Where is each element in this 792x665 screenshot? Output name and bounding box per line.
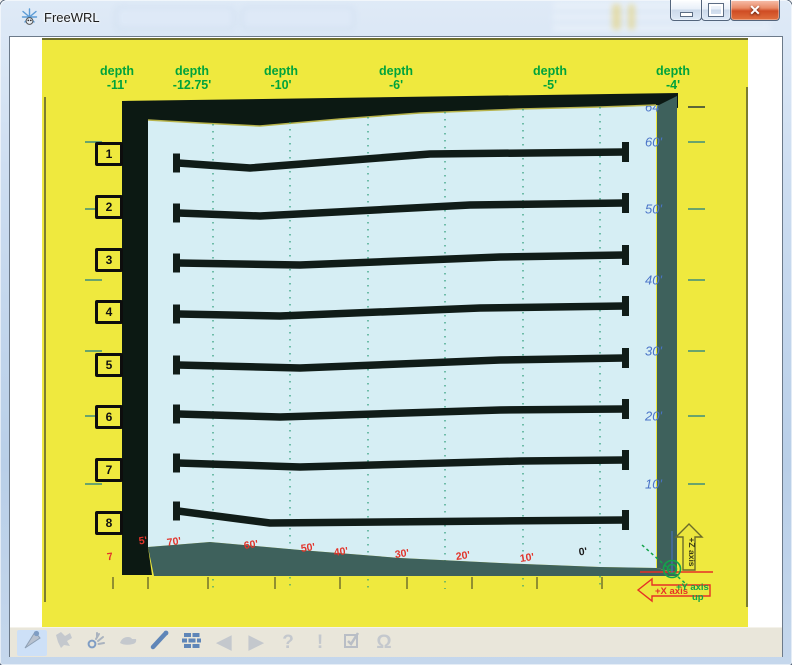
back-button[interactable]: ◀ (209, 630, 239, 656)
forward-button[interactable]: ▶ (241, 630, 271, 656)
bar-end-cap (173, 502, 180, 521)
bar-end-cap (622, 193, 629, 213)
mouse-button[interactable] (113, 630, 143, 656)
client-area: +Z axis +X axis +Y axis up depth-11'dept… (9, 36, 783, 657)
window-title: FreeWRL (44, 10, 100, 25)
examine-icon (85, 629, 107, 656)
bar-end-cap (622, 142, 629, 162)
checkbox-icon (341, 629, 363, 656)
messages-icon: ! (317, 633, 323, 653)
bar-end-cap (173, 454, 180, 473)
freewrl-window: FreeWRL ✕ (0, 0, 792, 665)
bar-end-cap (173, 204, 180, 223)
pen-icon (149, 629, 171, 656)
navigation-toolbar: ◀▶?!Ω (10, 627, 782, 657)
bar-end-cap (173, 356, 180, 375)
fly-icon (53, 629, 75, 656)
bar-end-cap (622, 510, 629, 530)
y-axis-label-up: up (692, 592, 704, 603)
maximize-button[interactable] (701, 0, 731, 21)
messages-button[interactable]: ! (305, 630, 335, 656)
bar-end-cap (173, 405, 180, 424)
bricks-button[interactable] (177, 630, 207, 656)
forward-icon: ▶ (249, 633, 264, 653)
background-window-accent (628, 4, 635, 30)
z-axis-label: +Z axis (687, 537, 697, 566)
bar-end-cap (173, 305, 180, 324)
bar-end-cap (622, 245, 629, 265)
headphones-icon: Ω (376, 633, 391, 653)
checkbox-button[interactable] (337, 630, 367, 656)
minimize-button[interactable] (670, 0, 702, 21)
bar-end-cap (622, 399, 629, 419)
pen-button[interactable] (145, 630, 175, 656)
scene-graphics: +Z axis +X axis +Y axis up (42, 40, 748, 629)
close-icon: ✕ (749, 3, 761, 17)
bricks-icon (181, 629, 203, 656)
right-wall (657, 96, 677, 573)
mouse-icon (117, 629, 139, 656)
examine-button[interactable] (81, 630, 111, 656)
fly-button[interactable] (49, 630, 79, 656)
viewport-3d[interactable]: +Z axis +X axis +Y axis up depth-11'dept… (42, 38, 748, 627)
walk-button[interactable] (17, 630, 47, 656)
bar-end-cap (622, 348, 629, 368)
help-icon: ? (282, 633, 294, 653)
maximize-icon (709, 4, 723, 16)
walk-icon (21, 629, 43, 656)
help-button[interactable]: ? (273, 630, 303, 656)
close-button[interactable]: ✕ (730, 0, 780, 21)
back-icon: ◀ (217, 633, 232, 653)
background-window-tab (116, 7, 234, 29)
bar-end-cap (173, 154, 180, 173)
bar-end-cap (173, 254, 180, 273)
minimize-icon (680, 12, 693, 17)
background-window-accent (612, 4, 621, 30)
freewrl-logo-icon (20, 8, 39, 27)
headphones-button[interactable]: Ω (369, 630, 399, 656)
background-window-tab (242, 7, 354, 29)
window-controls: ✕ (671, 0, 780, 21)
bar-end-cap (622, 450, 629, 470)
titlebar[interactable]: FreeWRL ✕ (0, 0, 792, 36)
bar-end-cap (622, 296, 629, 316)
back-wall-panel (148, 105, 656, 568)
